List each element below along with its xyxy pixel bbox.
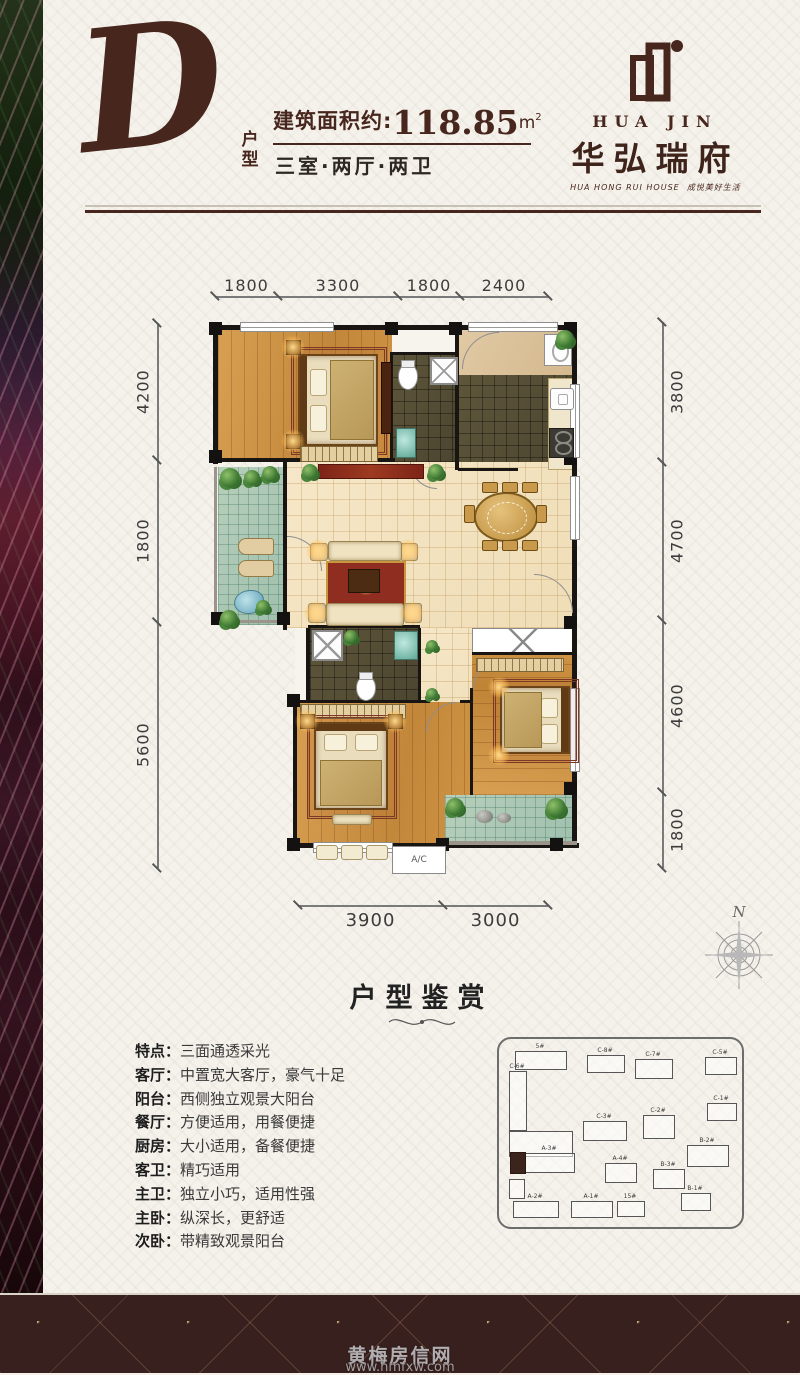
dim-right-2: 4700 xyxy=(668,462,686,620)
siteplan-building-label: B-2# xyxy=(699,1137,714,1144)
lamp-glow xyxy=(383,709,407,733)
siteplan-building xyxy=(687,1145,729,1167)
siteplan-building-label: 15# xyxy=(624,1193,637,1200)
feature-row: 阳台：西侧独立观景大阳台 xyxy=(135,1088,465,1112)
window xyxy=(240,322,334,332)
siteplan-building-label: C-5# xyxy=(712,1049,727,1056)
siteplan-building-label: C-3# xyxy=(596,1113,611,1120)
dining-chair xyxy=(502,540,518,551)
siteplan-building xyxy=(681,1193,711,1211)
lounge-chair xyxy=(238,538,274,555)
plant xyxy=(302,464,318,480)
bed-part xyxy=(310,369,327,396)
plant xyxy=(262,466,278,482)
siteplan-building xyxy=(653,1169,685,1189)
siteplan-building xyxy=(525,1153,575,1173)
feature-row: 主卧：纵深长，更舒适 xyxy=(135,1207,465,1231)
dim-right-3: 4600 xyxy=(668,620,686,792)
dim-right-1: 3800 xyxy=(668,322,686,462)
dining-chair xyxy=(522,540,538,551)
column xyxy=(564,782,577,795)
compass-north-label: N xyxy=(731,903,746,921)
feature-text: 纵深长，更舒适 xyxy=(180,1209,285,1227)
wall-segment xyxy=(455,328,459,470)
sofa-top xyxy=(328,541,402,561)
feature-colon: ： xyxy=(165,1185,180,1203)
bed-part xyxy=(320,760,382,806)
column xyxy=(209,322,222,335)
dining-chair xyxy=(502,482,518,493)
lamp-glow xyxy=(295,709,319,733)
bed-bedroom3 xyxy=(500,686,570,754)
dim-top-1: 1800 xyxy=(215,276,278,295)
siteplan-building-label: C-8# xyxy=(597,1047,612,1054)
dim-line-left xyxy=(157,323,159,868)
dim-bottom-1: 3900 xyxy=(298,910,443,931)
lamp-glow xyxy=(488,744,510,766)
toilet-master-bath xyxy=(356,676,376,701)
column xyxy=(287,838,300,851)
dim-line-bottom xyxy=(298,905,548,907)
plant xyxy=(446,798,464,816)
feature-colon: ： xyxy=(165,1232,180,1250)
bed-part xyxy=(316,724,386,731)
balcony-stone xyxy=(497,813,511,823)
bed-part xyxy=(561,688,568,752)
kitchen-stove xyxy=(549,428,574,458)
siteplan-building xyxy=(587,1055,625,1073)
lounge-chair xyxy=(238,560,274,577)
feature-label: 主卧 xyxy=(135,1209,165,1227)
siteplan-building-label: B-3# xyxy=(660,1161,675,1168)
feature-row: 次卧：带精致观景阳台 xyxy=(135,1230,465,1254)
siteplan-building xyxy=(605,1163,637,1183)
bed-part xyxy=(310,405,327,432)
feature-list: 特点：三面通透采光客厅：中置宽大客厅，豪气十足阳台：西侧独立观景大阳台餐厅：方便… xyxy=(135,1040,465,1254)
wall-segment xyxy=(293,700,430,703)
bay-window-cushions xyxy=(316,845,388,858)
feature-label: 客卫 xyxy=(135,1161,165,1179)
watermark-url: www.hmfxw.com xyxy=(300,1360,500,1375)
siteplan-building xyxy=(583,1121,627,1141)
bed-master xyxy=(314,722,388,810)
wall-segment xyxy=(213,325,218,464)
siteplan-building xyxy=(707,1103,737,1121)
siteplan-building xyxy=(635,1059,673,1079)
feature-row: 特点：三面通透采光 xyxy=(135,1040,465,1064)
lamp-glow xyxy=(488,676,510,698)
lamp-glow xyxy=(304,601,328,625)
siteplan-building-highlighted xyxy=(510,1152,526,1174)
wall-segment xyxy=(418,628,421,702)
column xyxy=(564,616,577,629)
lamp-glow xyxy=(306,539,330,563)
plant xyxy=(256,600,270,614)
siteplan-building-label: A-2# xyxy=(528,1193,543,1200)
dim-bottom-2: 3000 xyxy=(443,910,548,931)
feature-text: 三面通透采光 xyxy=(180,1042,270,1060)
feature-text: 带精致观景阳台 xyxy=(180,1232,285,1250)
feature-colon: ： xyxy=(165,1113,180,1131)
vanity-guest-bath xyxy=(396,428,416,458)
feature-colon: ： xyxy=(165,1042,180,1060)
feature-colon: ： xyxy=(165,1090,180,1108)
feature-label: 客厅 xyxy=(135,1066,165,1084)
dim-top-3: 1800 xyxy=(398,276,460,295)
plant xyxy=(220,468,240,488)
lamp-glow xyxy=(400,601,424,625)
column xyxy=(277,612,290,625)
siteplan-building-label: A-1# xyxy=(584,1193,599,1200)
feature-colon: ： xyxy=(165,1137,180,1155)
siteplan-building xyxy=(705,1057,737,1075)
siteplan-building xyxy=(571,1201,613,1218)
tv-wall xyxy=(318,464,424,479)
feature-colon: ： xyxy=(165,1209,180,1227)
feature-row: 客厅：中置宽大客厅，豪气十足 xyxy=(135,1064,465,1088)
shower-guest-bath xyxy=(430,357,458,385)
wall-segment xyxy=(390,352,458,355)
bed-bench xyxy=(332,814,372,825)
feature-label: 餐厅 xyxy=(135,1113,165,1131)
balcony-stone xyxy=(476,810,493,823)
column xyxy=(385,322,398,335)
window xyxy=(468,322,558,332)
feature-row: 客卫：精巧适用 xyxy=(135,1159,465,1183)
cushion xyxy=(366,845,388,860)
wall-segment xyxy=(472,652,575,655)
dim-right-4: 1800 xyxy=(668,792,686,868)
feature-row: 主卫：独立小巧，适用性强 xyxy=(135,1183,465,1207)
bed-part xyxy=(541,698,558,718)
dim-line-top xyxy=(215,296,548,298)
dining-chair xyxy=(482,482,498,493)
site-plan-map: 5#C-8#C-7#C-5#C-6#C-3#C-2#C-1#B-2#A-3#A-… xyxy=(497,1037,744,1229)
siteplan-building-label: B-1# xyxy=(687,1185,702,1192)
dim-top-2: 3300 xyxy=(278,276,398,295)
siteplan-building xyxy=(509,1179,525,1199)
dim-line-right xyxy=(662,322,664,868)
window xyxy=(570,476,580,540)
dim-left-1: 4200 xyxy=(134,323,152,460)
plant xyxy=(428,464,444,480)
siteplan-building xyxy=(643,1115,675,1139)
section-title: 户型鉴赏 xyxy=(43,976,800,1015)
wall-segment xyxy=(458,468,518,471)
wardrobe-bedroom3 xyxy=(476,658,564,672)
dim-left-2: 1800 xyxy=(134,460,152,622)
dining-chair xyxy=(482,540,498,551)
dim-left-3: 5600 xyxy=(134,622,152,868)
feature-label: 厨房 xyxy=(135,1137,165,1155)
siteplan-building xyxy=(617,1201,645,1217)
feature-row: 厨房：大小适用，备餐便捷 xyxy=(135,1135,465,1159)
column xyxy=(287,694,300,707)
feature-text: 精巧适用 xyxy=(180,1161,240,1179)
cushion xyxy=(316,845,338,860)
kitchen-sink xyxy=(550,388,574,410)
siteplan-building-label: C-6# xyxy=(509,1063,524,1070)
lamp-glow xyxy=(281,335,305,359)
feature-colon: ： xyxy=(165,1066,180,1084)
feature-text: 独立小巧，适用性强 xyxy=(180,1185,315,1203)
column xyxy=(449,322,462,335)
column xyxy=(209,450,222,463)
feature-label: 特点 xyxy=(135,1042,165,1060)
plant xyxy=(426,688,438,700)
coffee-table xyxy=(348,569,380,593)
vanity-master-bath xyxy=(394,631,418,660)
bed-part xyxy=(300,356,307,444)
siteplan-building-label: C-1# xyxy=(713,1095,728,1102)
dining-chair xyxy=(464,505,475,523)
feature-row: 餐厅：方便适用，用餐便捷 xyxy=(135,1111,465,1135)
siteplan-building-label: C-7# xyxy=(645,1051,660,1058)
wall-segment xyxy=(470,688,473,795)
feature-text: 中置宽大客厅，豪气十足 xyxy=(180,1066,345,1084)
siteplan-building xyxy=(513,1201,559,1218)
bed-part xyxy=(355,734,378,751)
plant xyxy=(426,640,438,652)
siteplan-building-label: 5# xyxy=(536,1043,545,1050)
siteplan-building-label: A-3# xyxy=(542,1145,557,1152)
plant xyxy=(546,798,566,818)
plant xyxy=(344,630,358,644)
toilet-guest-bath xyxy=(398,364,418,390)
feature-colon: ： xyxy=(165,1161,180,1179)
column xyxy=(550,838,563,851)
dining-chair xyxy=(536,505,547,523)
bed-part xyxy=(541,724,558,744)
shower-master-bath xyxy=(312,630,343,661)
feature-text: 方便适用，用餐便捷 xyxy=(180,1113,315,1131)
section-flourish xyxy=(43,1014,800,1034)
feature-text: 大小适用，备餐便捷 xyxy=(180,1137,315,1155)
dim-top-4: 2400 xyxy=(460,276,548,295)
bed-part xyxy=(504,692,542,748)
dining-chair xyxy=(522,482,538,493)
plant xyxy=(244,470,260,486)
dining-table xyxy=(474,492,538,542)
bed-part xyxy=(324,734,347,751)
plant xyxy=(556,330,574,348)
wall-segment xyxy=(306,628,310,702)
sofa-bottom xyxy=(326,603,404,626)
feature-text: 西侧独立观景大阳台 xyxy=(180,1090,315,1108)
cushion xyxy=(341,845,363,860)
wardrobe-bedroom2 xyxy=(300,446,378,462)
tv-panel-bedroom2 xyxy=(381,362,392,434)
siteplan-building-label: C-2# xyxy=(650,1107,665,1114)
ac-platform: A/C xyxy=(392,846,446,874)
feature-label: 主卫 xyxy=(135,1185,165,1203)
siteplan-building xyxy=(509,1071,527,1131)
bed-part xyxy=(330,360,374,440)
plant xyxy=(220,610,238,628)
siteplan-building-label: A-4# xyxy=(613,1155,628,1162)
feature-label: 次卧 xyxy=(135,1232,165,1250)
balcony-rail xyxy=(214,467,217,623)
feature-label: 阳台 xyxy=(135,1090,165,1108)
bed-bedroom2 xyxy=(298,354,378,446)
